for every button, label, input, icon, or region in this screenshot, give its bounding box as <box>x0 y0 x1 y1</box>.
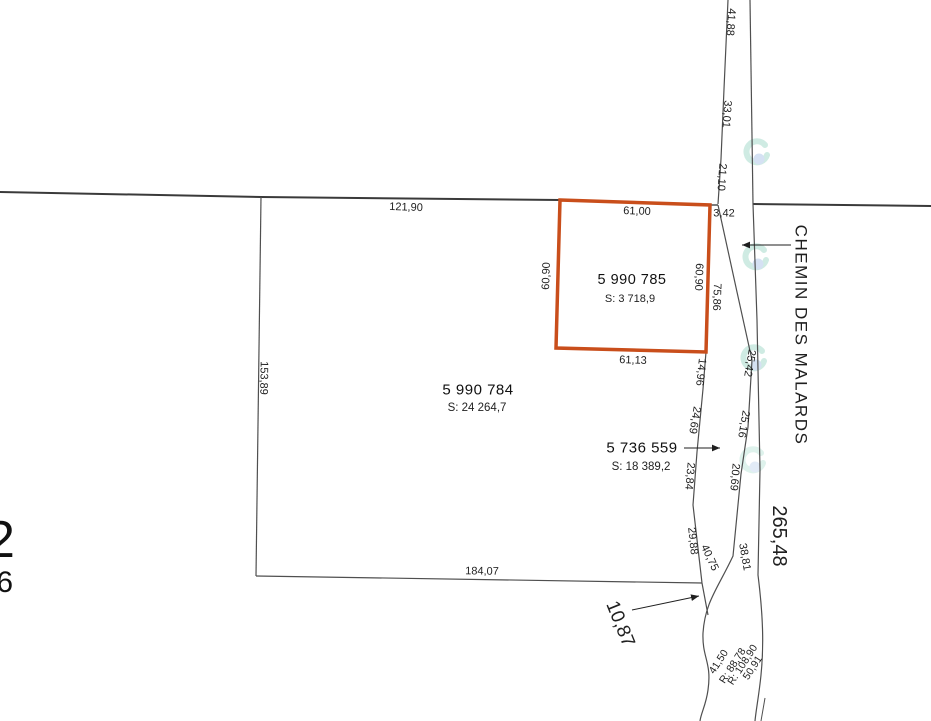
road-west-edge-upper <box>718 0 728 204</box>
dim-10-87-leader-arrow <box>632 596 699 610</box>
watermark-logo <box>743 347 764 370</box>
north-boundary-line <box>0 192 560 200</box>
road-east-edge-outer <box>761 698 765 721</box>
watermark-logo <box>745 246 766 269</box>
highlighted-parcel-785[interactable] <box>556 200 710 352</box>
road-east-edge-upper <box>750 0 753 204</box>
watermark-logos <box>742 141 767 472</box>
parcel-lines-layer <box>0 0 931 721</box>
parcel-784-south-edge <box>256 576 702 583</box>
parcel-784-west-edge <box>256 197 261 576</box>
parcel-784-east-edge <box>693 352 708 615</box>
cadastral-map: 121,9061,003,4241,8833,0121,1060,9060,90… <box>0 0 931 721</box>
east-boundary-line <box>753 204 931 206</box>
watermark-logo <box>746 141 767 164</box>
